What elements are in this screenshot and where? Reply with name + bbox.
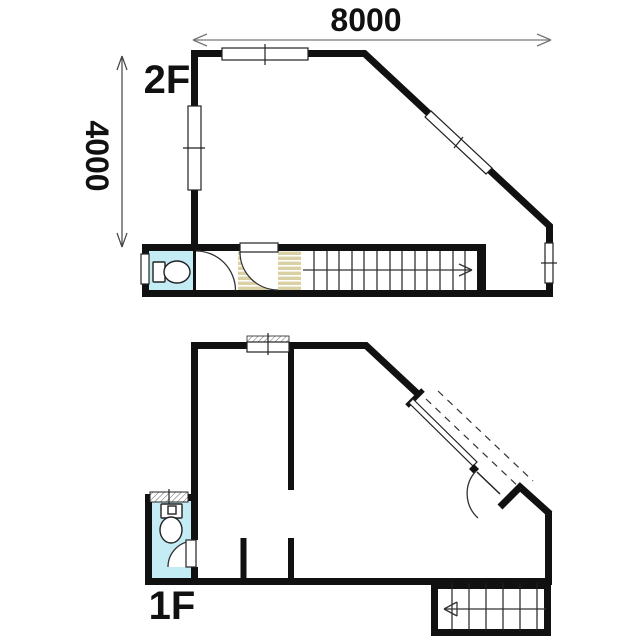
entrance-opening-1f (409, 391, 533, 518)
floor2-label: 2F (144, 58, 191, 102)
toilet-partition-wall-2f (193, 251, 196, 290)
dimension-width-label: 8000 (330, 2, 401, 38)
sliding-door-1f (409, 399, 477, 466)
floor1-label: 1F (149, 584, 196, 628)
wall-notch-lower-1f (500, 487, 550, 514)
toilet-flush-button (168, 506, 176, 514)
toilet-bowl (160, 517, 182, 543)
dimension-height-label: 4000 (79, 120, 115, 191)
door-leaf-entrance-1f (477, 472, 500, 494)
floor-plan-1f: 1F (145, 333, 552, 633)
toilet-bowl (164, 261, 190, 283)
external-stairs-1f (435, 583, 548, 633)
dimension-height: 4000 (79, 56, 127, 247)
door-leaf-toilet-1f (186, 540, 196, 567)
floor-plan-drawing: 8000 4000 2F (0, 0, 640, 640)
wall-top-diagonal-1f (191, 346, 419, 396)
toilet-icon (160, 504, 182, 543)
floor-plan-sheet: 8000 4000 2F (0, 0, 640, 640)
window-top-2f (222, 44, 308, 65)
door-leaf-stairs-2f (240, 243, 278, 252)
toilet-icon (153, 261, 190, 283)
floor-plan-2f: 2F (141, 44, 557, 294)
overhang-dashed-line (438, 391, 533, 481)
window-toilet-2f (141, 254, 149, 284)
window-top-1f (247, 333, 289, 355)
strip-top-wall-2f (142, 244, 486, 252)
stair-end-wall-2f (477, 244, 486, 290)
toilet-tank (153, 262, 165, 282)
door-swing-entrance-1f (467, 471, 478, 518)
window-left-2f (183, 106, 205, 190)
window-diagonal-2f (425, 111, 492, 174)
window-right-2f (541, 243, 557, 283)
dimension-width: 8000 (193, 2, 551, 46)
overhang-dashed-line (426, 399, 521, 489)
